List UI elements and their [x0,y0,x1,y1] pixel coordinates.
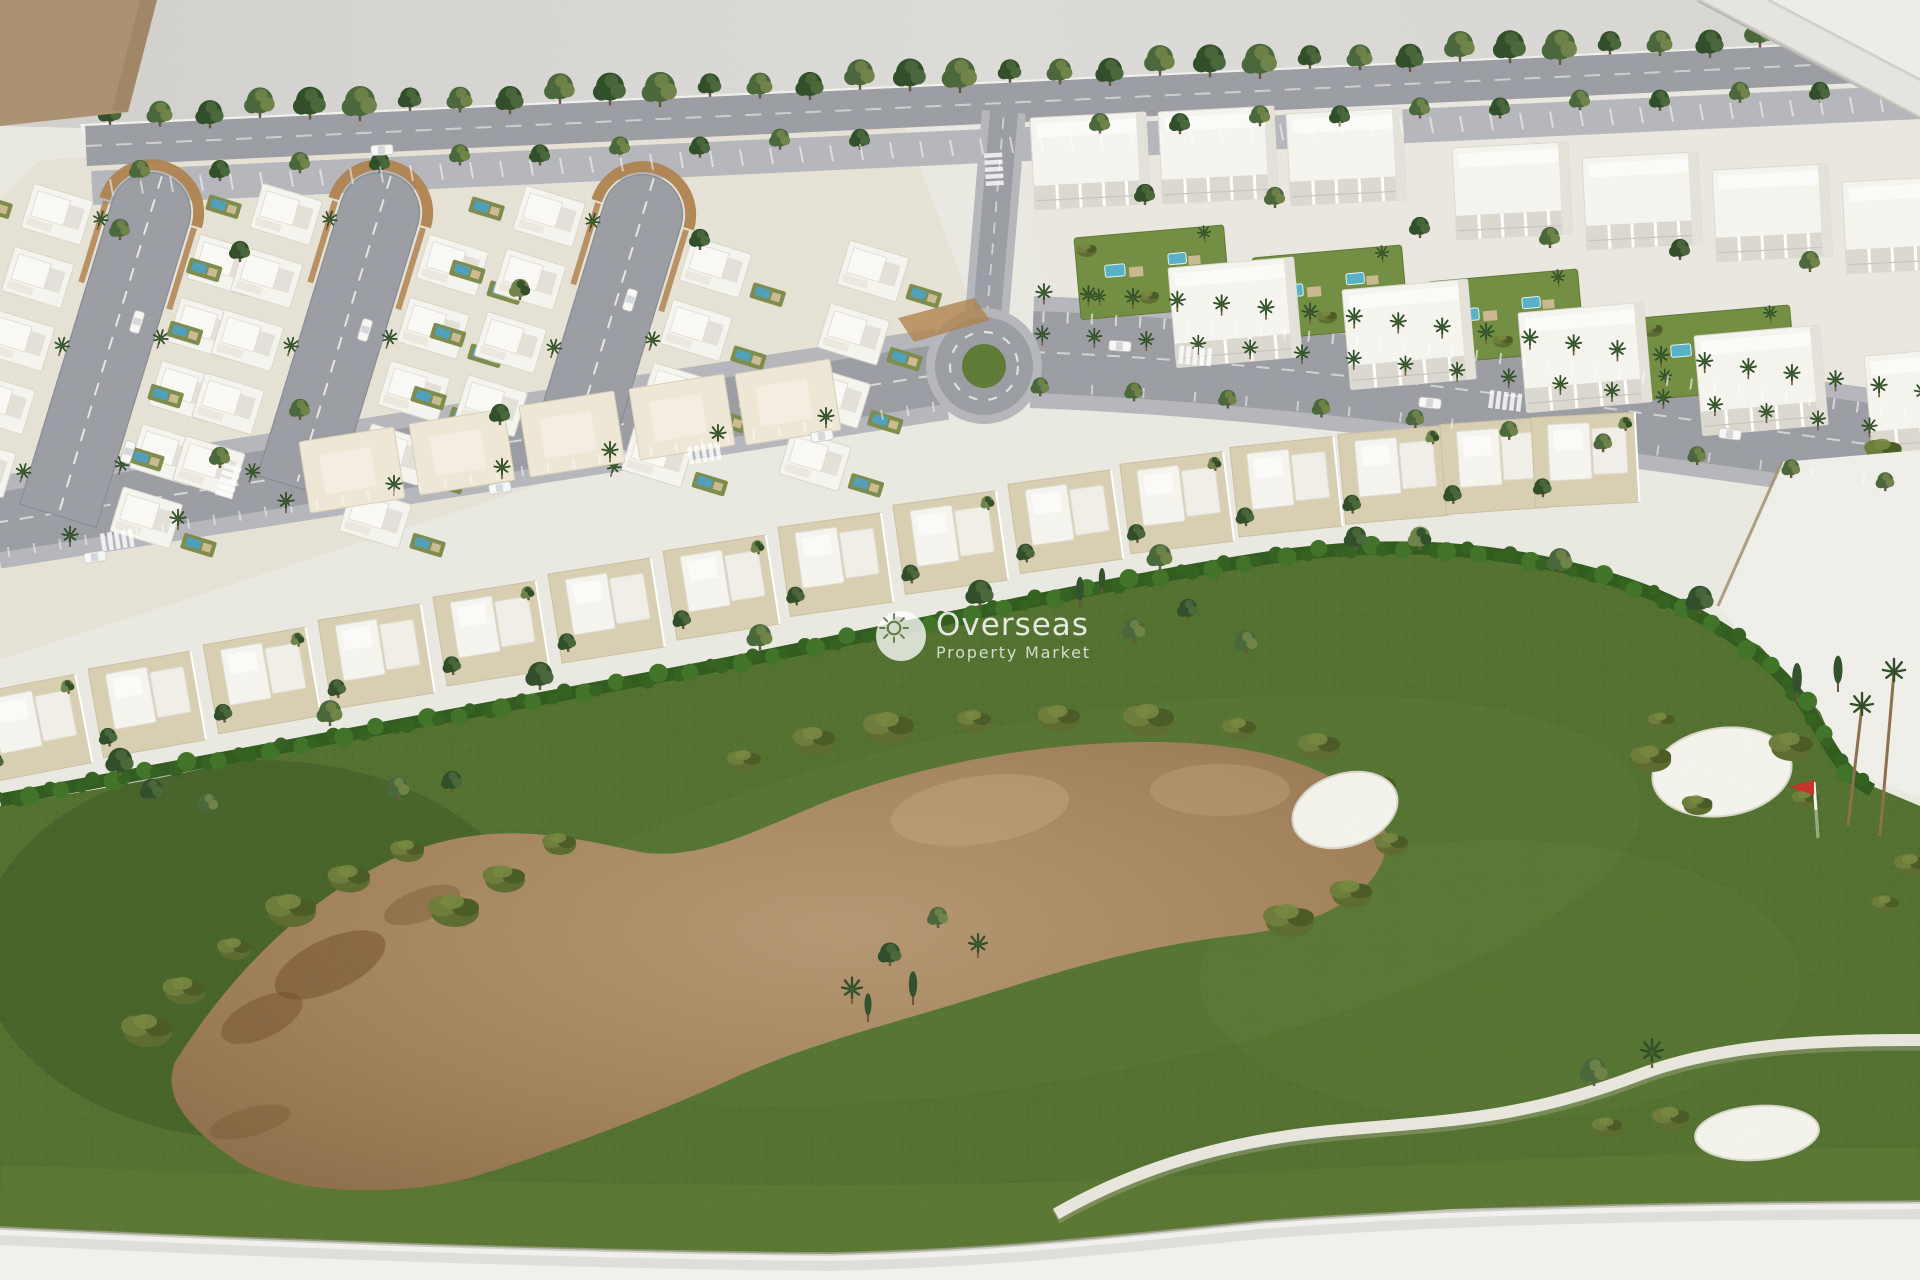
watermark: Overseas Property Market [876,610,1091,661]
sun-icon [876,611,926,661]
architectural-model-photo: Overseas Property Market [0,0,1920,1280]
watermark-brand: Overseas [936,610,1091,641]
watermark-tagline: Property Market [936,645,1091,661]
